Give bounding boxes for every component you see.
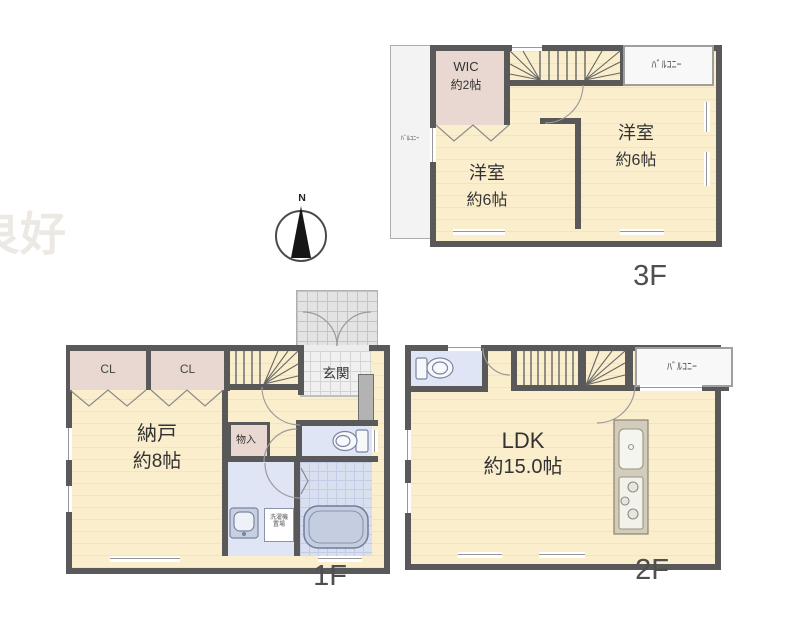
floor1-label: 1F	[292, 560, 368, 593]
floor2-plan: ﾊﾞﾙｺﾆｰ LDK 約15.0帖	[403, 343, 738, 567]
floor2-label: 2F	[614, 554, 690, 587]
bathtub-icon	[304, 506, 368, 548]
floorplan-canvas: 良好 N ﾊﾞﾙｺﾆｰ ﾊﾞﾙｺﾆｰ WIC 約2帖	[0, 0, 800, 620]
floor1-plan: CL CL 玄関 納戸 約8帖 物入 洗濯機置場	[62, 288, 392, 600]
floor3-label: 3F	[612, 260, 688, 293]
sink-icon	[230, 508, 258, 538]
floor1-linework	[62, 288, 392, 600]
floor2-linework	[403, 343, 738, 567]
watermark-text: 良好	[0, 198, 66, 264]
compass-icon	[270, 192, 334, 276]
floor3-plan: ﾊﾞﾙｺﾆｰ ﾊﾞﾙｺﾆｰ WIC 約2帖 洋室 約6帖 洋室 約6帖	[390, 42, 725, 242]
toilet-icon	[333, 430, 368, 452]
compass: N	[270, 192, 334, 276]
floor3-linework	[390, 42, 725, 242]
toilet-icon	[416, 358, 453, 379]
kitchen-icon	[614, 420, 648, 534]
